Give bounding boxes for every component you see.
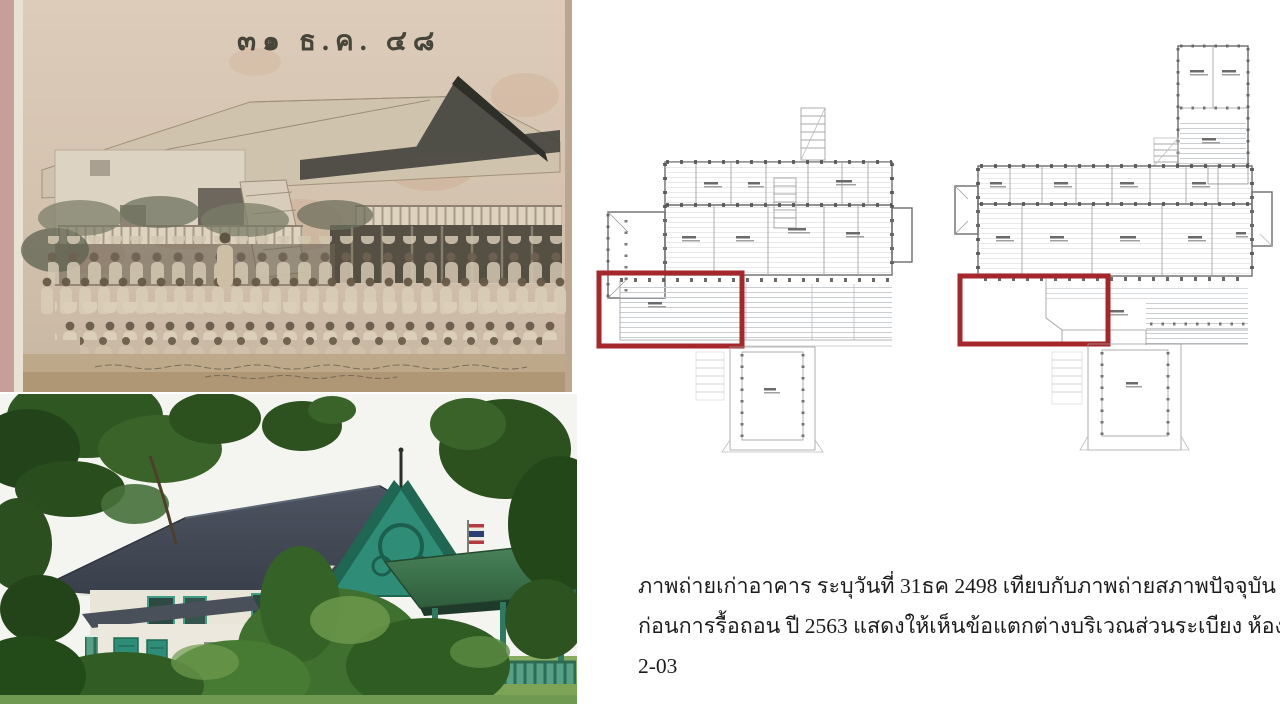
caption-line-3: 2-03 — [638, 646, 1213, 686]
recent-photo-image — [0, 394, 577, 704]
caption-line-2: ก่อนการรื้อถอน ปี 2563 แสดงให้เห็นข้อแตก… — [638, 606, 1213, 646]
plan-stair-top — [801, 108, 825, 160]
plan-veranda — [598, 280, 892, 346]
plan-tower — [1154, 46, 1248, 166]
old-photo-left-border — [0, 0, 14, 392]
comparison-figure: ๓๑ ธ.ค. ๔๘ — [0, 0, 1280, 704]
floor-plan-after — [950, 26, 1280, 474]
plan-side-stair-after — [1052, 352, 1082, 404]
date-stamp: ๓๑ ธ.ค. ๔๘ — [237, 26, 441, 57]
figure-caption: ภาพถ่ายเก่าอาคาร ระบุวันที่ 31ธค 2498 เท… — [638, 566, 1213, 686]
plan-veranda-modified — [984, 279, 1248, 345]
plan-walkway-after — [1080, 344, 1189, 450]
plan-walkway — [722, 347, 823, 452]
plan-side-stair — [696, 352, 724, 400]
caption-line-1: ภาพถ่ายเก่าอาคาร ระบุวันที่ 31ธค 2498 เท… — [638, 566, 1213, 606]
floor-plan-before — [596, 100, 956, 472]
group-of-people — [40, 233, 568, 359]
old-photo-image: ๓๑ ธ.ค. ๔๘ — [0, 0, 572, 392]
